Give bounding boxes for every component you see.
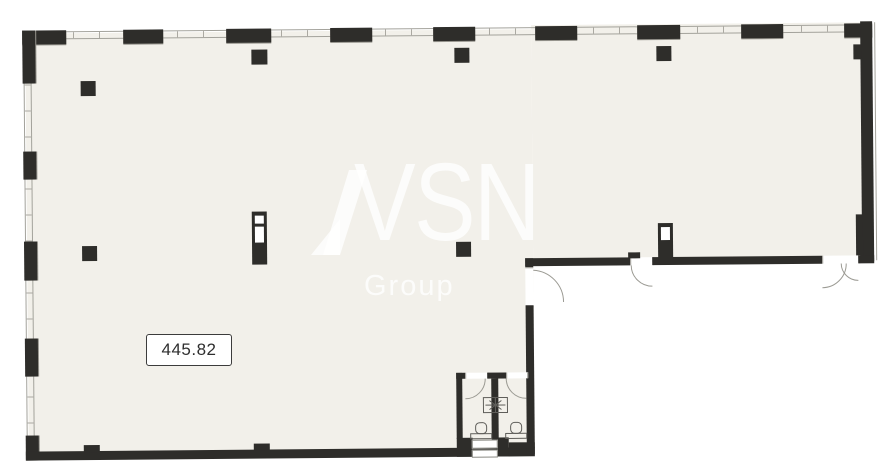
door-swing-arc	[822, 263, 846, 287]
door-swing-arc	[506, 378, 526, 398]
area-label-text: 445.82	[162, 340, 217, 360]
toilet-icon	[471, 423, 492, 439]
door-swing-arc	[465, 379, 485, 399]
door-swing-arc	[631, 265, 652, 286]
plan-canvas	[0, 0, 885, 471]
door-swing-arc	[533, 270, 563, 302]
thin-linework-layer	[0, 0, 885, 471]
toilet-icon	[506, 422, 527, 438]
floorplan-image: VSN Group 445.82	[0, 0, 885, 471]
door-swing-arc	[841, 263, 858, 280]
area-label: 445.82	[146, 334, 232, 366]
ventilation-shaft-icon	[483, 397, 507, 412]
